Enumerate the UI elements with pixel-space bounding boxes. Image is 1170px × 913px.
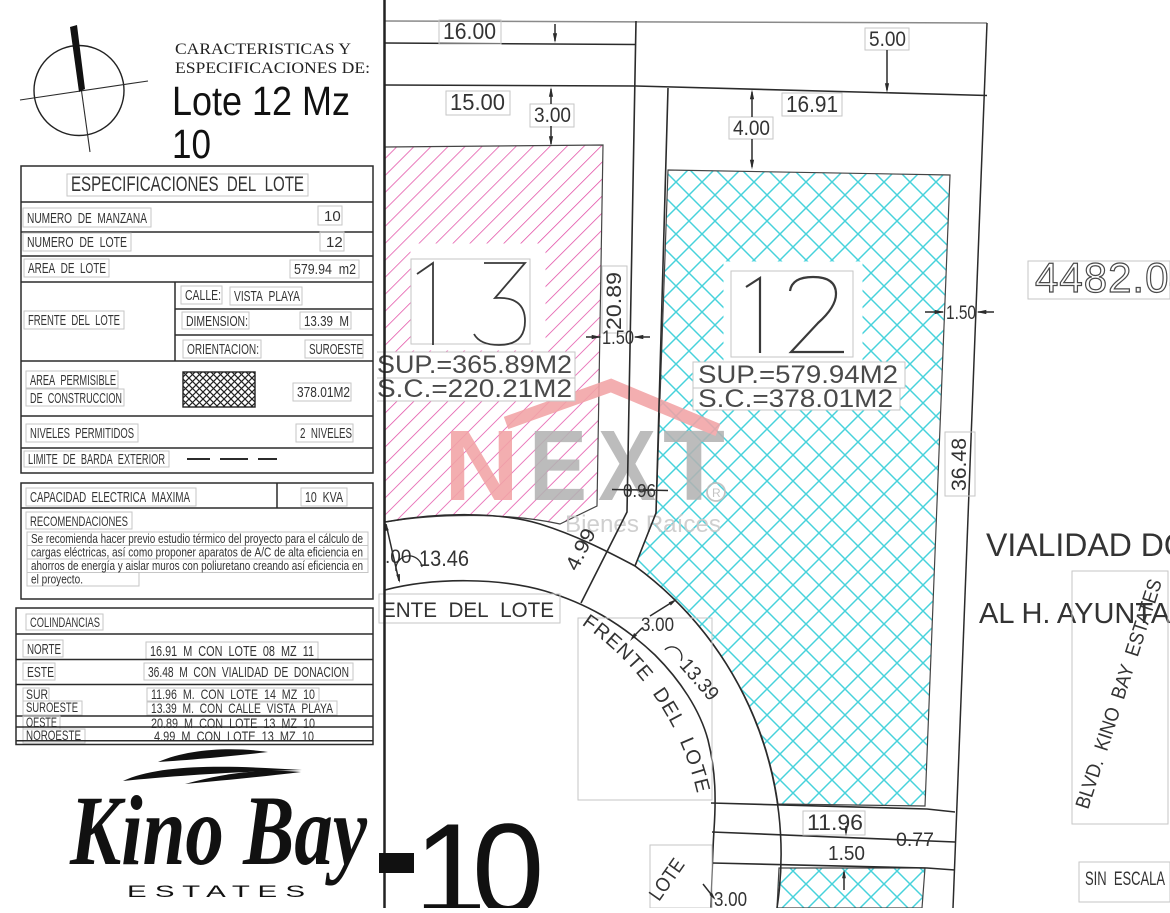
svg-text:ESPECIFICACIONES DE:: ESPECIFICACIONES DE:	[175, 60, 370, 77]
svg-text:CARACTERISTICAS Y: CARACTERISTICAS Y	[175, 41, 351, 58]
svg-text:CALLE:: CALLE:	[185, 287, 221, 304]
svg-text:SUROESTE: SUROESTE	[26, 699, 78, 715]
svg-text:20.89: 20.89	[603, 272, 626, 330]
svg-text:cargas eléctricas, así como pr: cargas eléctricas, así como proponer apa…	[31, 546, 363, 560]
svg-text:2 NIVELES: 2 NIVELES	[300, 425, 352, 442]
svg-text:13.46: 13.46	[419, 546, 469, 571]
svg-text:1.50: 1.50	[602, 328, 634, 349]
svg-text:el proyecto.: el proyecto.	[31, 573, 83, 587]
svg-text:S.C.=220.21M2: S.C.=220.21M2	[377, 375, 572, 403]
svg-text:SUROESTE: SUROESTE	[309, 341, 363, 358]
svg-text:ESPECIFICACIONES DEL LOTE: ESPECIFICACIONES DEL LOTE	[71, 173, 304, 196]
svg-text:Kino Bay: Kino Bay	[69, 775, 367, 886]
svg-text:10: 10	[172, 121, 211, 167]
svg-text:CAPACIDAD ELECTRICA MAXIMA: CAPACIDAD ELECTRICA MAXIMA	[30, 489, 190, 506]
svg-text:.00: .00	[385, 547, 411, 568]
svg-text:DE CONSTRUCCION: DE CONSTRUCCION	[30, 390, 122, 407]
svg-text:4.00: 4.00	[733, 117, 770, 140]
svg-text:LIMITE DE BARDA EXTERIOR: LIMITE DE BARDA EXTERIOR	[28, 451, 165, 468]
svg-text:COLINDANCIAS: COLINDANCIAS	[30, 614, 100, 630]
svg-text:5.00: 5.00	[869, 28, 906, 51]
svg-text:0.77: 0.77	[896, 830, 934, 851]
svg-text:VISTA PLAYA: VISTA PLAYA	[234, 288, 300, 305]
svg-text:3.00: 3.00	[641, 615, 674, 636]
svg-text:VIALIDAD DONACION: VIALIDAD DONACION	[986, 527, 1170, 563]
svg-text:NUMERO DE LOTE: NUMERO DE LOTE	[27, 234, 127, 251]
svg-text:Lote 12 Mz: Lote 12 Mz	[172, 78, 350, 124]
svg-text:3.00: 3.00	[714, 889, 747, 908]
svg-text:ESTE: ESTE	[27, 664, 54, 681]
svg-text:S.C.=378.01M2: S.C.=378.01M2	[698, 385, 893, 413]
svg-text:0: 0	[472, 796, 544, 908]
svg-text:579.94 m2: 579.94 m2	[294, 261, 356, 278]
svg-text:16.91: 16.91	[786, 91, 838, 117]
svg-text:RECOMENDACIONES: RECOMENDACIONES	[30, 513, 128, 529]
svg-text:ENTE DEL LOTE: ENTE DEL LOTE	[382, 599, 554, 622]
svg-text:ahorros de energía y aislar mu: ahorros de energía y aislar muros con po…	[31, 559, 363, 573]
svg-text:0.96: 0.96	[623, 481, 656, 501]
svg-text:12: 12	[326, 234, 343, 251]
svg-text:1.50: 1.50	[946, 303, 976, 324]
svg-text:378.01M2: 378.01M2	[297, 384, 350, 401]
svg-text:NIVELES PERMITIDOS: NIVELES PERMITIDOS	[30, 425, 134, 442]
svg-text:13.39 M. CON CALLE VISTA: 13.39 M. CON CALLE VISTA PLAYA	[151, 700, 333, 716]
svg-text:FRENTE DEL LOTE: FRENTE DEL LOTE	[28, 312, 120, 329]
svg-text:10 KVA: 10 KVA	[305, 489, 343, 506]
svg-text:36.48: 36.48	[948, 438, 971, 491]
svg-text:4.99 M CON LOTE 13 MZ 10: 4.99 M CON LOTE 13 MZ 10	[154, 728, 314, 744]
svg-text:ORIENTACION:: ORIENTACION:	[187, 341, 259, 358]
svg-text:36.48 M CON VIALIDAD DE D: 36.48 M CON VIALIDAD DE DONACION	[148, 664, 349, 681]
svg-text:1.50: 1.50	[828, 843, 865, 865]
svg-text:E: E	[529, 410, 587, 522]
svg-text:11.96: 11.96	[807, 810, 863, 835]
svg-text:AREA PERMISIBLE: AREA PERMISIBLE	[30, 372, 116, 389]
svg-text:DIMENSION:: DIMENSION:	[186, 313, 248, 330]
svg-text:SIN ESCALA: SIN ESCALA	[1085, 869, 1165, 890]
svg-text:15.00: 15.00	[450, 89, 505, 115]
svg-text:Se recomienda hacer previo est: Se recomienda hacer previo estudio térmi…	[31, 532, 363, 546]
svg-text:E S T A T E S: E S T A T E S	[127, 882, 305, 901]
svg-text:NORTE: NORTE	[27, 641, 61, 658]
svg-text:3.00: 3.00	[534, 104, 571, 127]
svg-text:10: 10	[324, 208, 341, 225]
svg-text:16.00: 16.00	[443, 18, 496, 44]
svg-text:R: R	[712, 486, 721, 500]
svg-text:AREA DE LOTE: AREA DE LOTE	[28, 260, 106, 277]
svg-text:4482.04: 4482.04	[1035, 254, 1170, 301]
svg-text:NUMERO DE MANZANA: NUMERO DE MANZANA	[27, 210, 147, 227]
svg-text:16.91 M CON LOTE 08 MZ 1: 16.91 M CON LOTE 08 MZ 11	[150, 643, 314, 660]
svg-text:13.39 M: 13.39 M	[304, 313, 349, 330]
